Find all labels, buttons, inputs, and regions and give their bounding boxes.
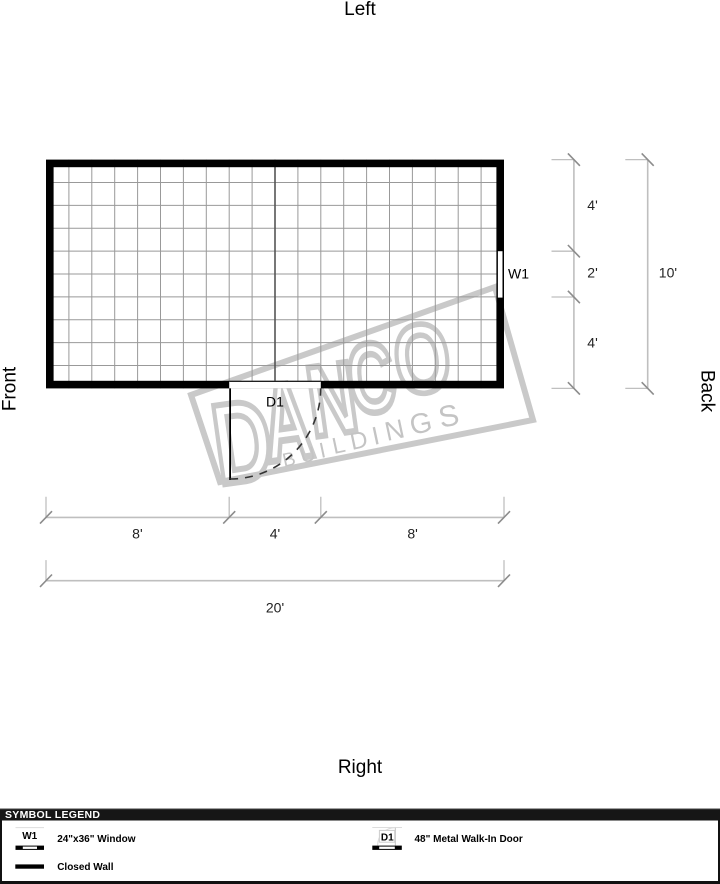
svg-text:4': 4' — [587, 335, 597, 351]
svg-text:N: N — [382, 413, 407, 446]
svg-text:4': 4' — [270, 526, 280, 542]
svg-text:Left: Left — [344, 0, 376, 20]
svg-text:24"x36" Window: 24"x36" Window — [57, 834, 136, 845]
svg-text:8': 8' — [132, 526, 142, 542]
svg-text:4': 4' — [587, 197, 597, 213]
svg-text:Right: Right — [338, 757, 383, 778]
svg-text:W1: W1 — [508, 265, 529, 281]
svg-text:W1: W1 — [22, 831, 37, 842]
svg-text:Front: Front — [0, 366, 21, 411]
svg-text:20': 20' — [266, 600, 284, 616]
svg-text:SYMBOL LEGEND: SYMBOL LEGEND — [5, 809, 100, 821]
svg-text:Back: Back — [697, 370, 718, 413]
svg-text:D1: D1 — [266, 393, 284, 409]
svg-text:48" Metal Walk-In Door: 48" Metal Walk-In Door — [415, 834, 523, 845]
svg-text:8': 8' — [407, 526, 417, 542]
svg-text:S: S — [436, 398, 462, 434]
svg-text:Closed Wall: Closed Wall — [57, 862, 114, 873]
svg-text:D1: D1 — [381, 833, 394, 844]
svg-text:10': 10' — [659, 265, 677, 281]
svg-text:2': 2' — [587, 264, 597, 280]
